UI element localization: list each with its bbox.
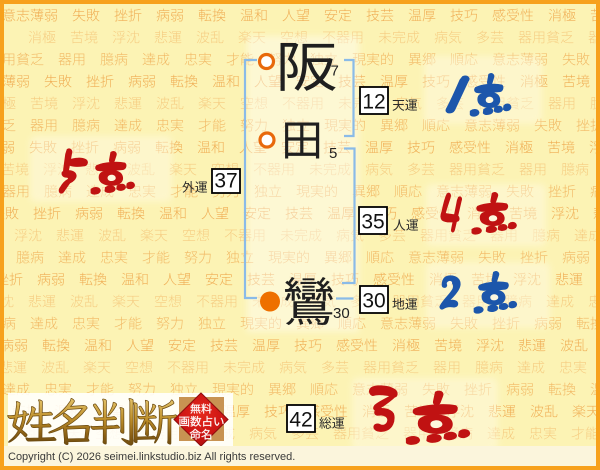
svg-text:Copyright (C) 2026 seimei.link: Copyright (C) 2026 seimei.linkstudio.biz… xyxy=(8,451,295,463)
svg-text:42: 42 xyxy=(289,409,312,432)
svg-text:5: 5 xyxy=(329,145,337,162)
svg-text:30: 30 xyxy=(362,290,385,313)
svg-text:12: 12 xyxy=(362,91,385,114)
svg-text:30: 30 xyxy=(333,305,350,322)
svg-text:37: 37 xyxy=(214,170,237,193)
svg-text:35: 35 xyxy=(361,211,384,234)
svg-text:7: 7 xyxy=(331,63,339,80)
